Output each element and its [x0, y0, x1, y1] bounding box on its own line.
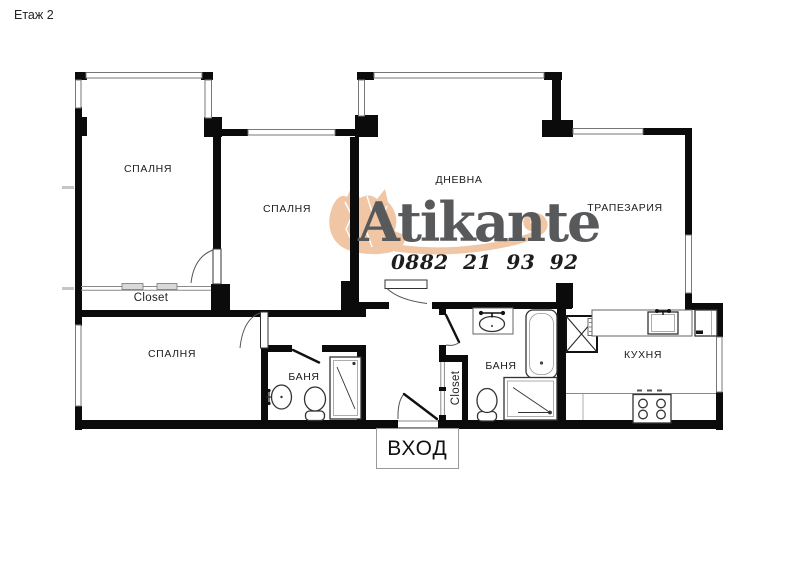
brand-wordmark: Atikante [358, 194, 599, 250]
hall-closet-sliding-door [439, 362, 446, 415]
room-label-bathroom-left: БАНЯ [288, 371, 319, 383]
living-room-door [385, 280, 427, 304]
entrance-label: ВХОД [387, 437, 448, 461]
bathroom-right-door [446, 315, 459, 345]
fridge-icon [695, 310, 717, 336]
bedroom3-door [240, 312, 268, 348]
stove-icon [633, 395, 671, 424]
room-label-bedroom-top-left: СПАЛНЯ [124, 163, 172, 175]
closet-sliding-doors [81, 284, 211, 291]
toilet-icon [477, 389, 497, 422]
sink-icon [473, 308, 513, 334]
shower-icon [504, 378, 557, 421]
sink-icon [266, 385, 292, 409]
dimension-ticks [62, 186, 74, 290]
shower-icon [330, 357, 361, 419]
bedroom1-door [191, 249, 221, 284]
brand-phone-number: 0882 21 93 92 [391, 250, 579, 274]
floor-plan-page: Етаж 2 СПАЛНЯ СПАЛНЯ ДНЕВНА ТРАПЕЗАРИЯ С… [0, 0, 800, 565]
kitchen-sink-counter [592, 309, 692, 336]
toilet-icon [305, 387, 326, 421]
floor-title: Етаж 2 [14, 8, 54, 22]
room-label-bedroom-bottom-left: СПАЛНЯ [148, 348, 196, 360]
room-label-kitchen: КУХНЯ [624, 349, 662, 361]
closet-top-label: Closet [134, 292, 168, 304]
entrance-box: ВХОД [376, 428, 459, 469]
bathtub-icon [526, 310, 557, 378]
bathroom-left-door [293, 350, 319, 363]
room-label-living-room: ДНЕВНА [436, 174, 483, 186]
floor-plan-drawing [0, 0, 800, 565]
room-label-bedroom-middle: СПАЛНЯ [263, 203, 311, 215]
room-label-bathroom-right: БАНЯ [485, 360, 516, 372]
entrance-door [398, 394, 438, 428]
closet-hall-label: Closet [450, 371, 462, 405]
